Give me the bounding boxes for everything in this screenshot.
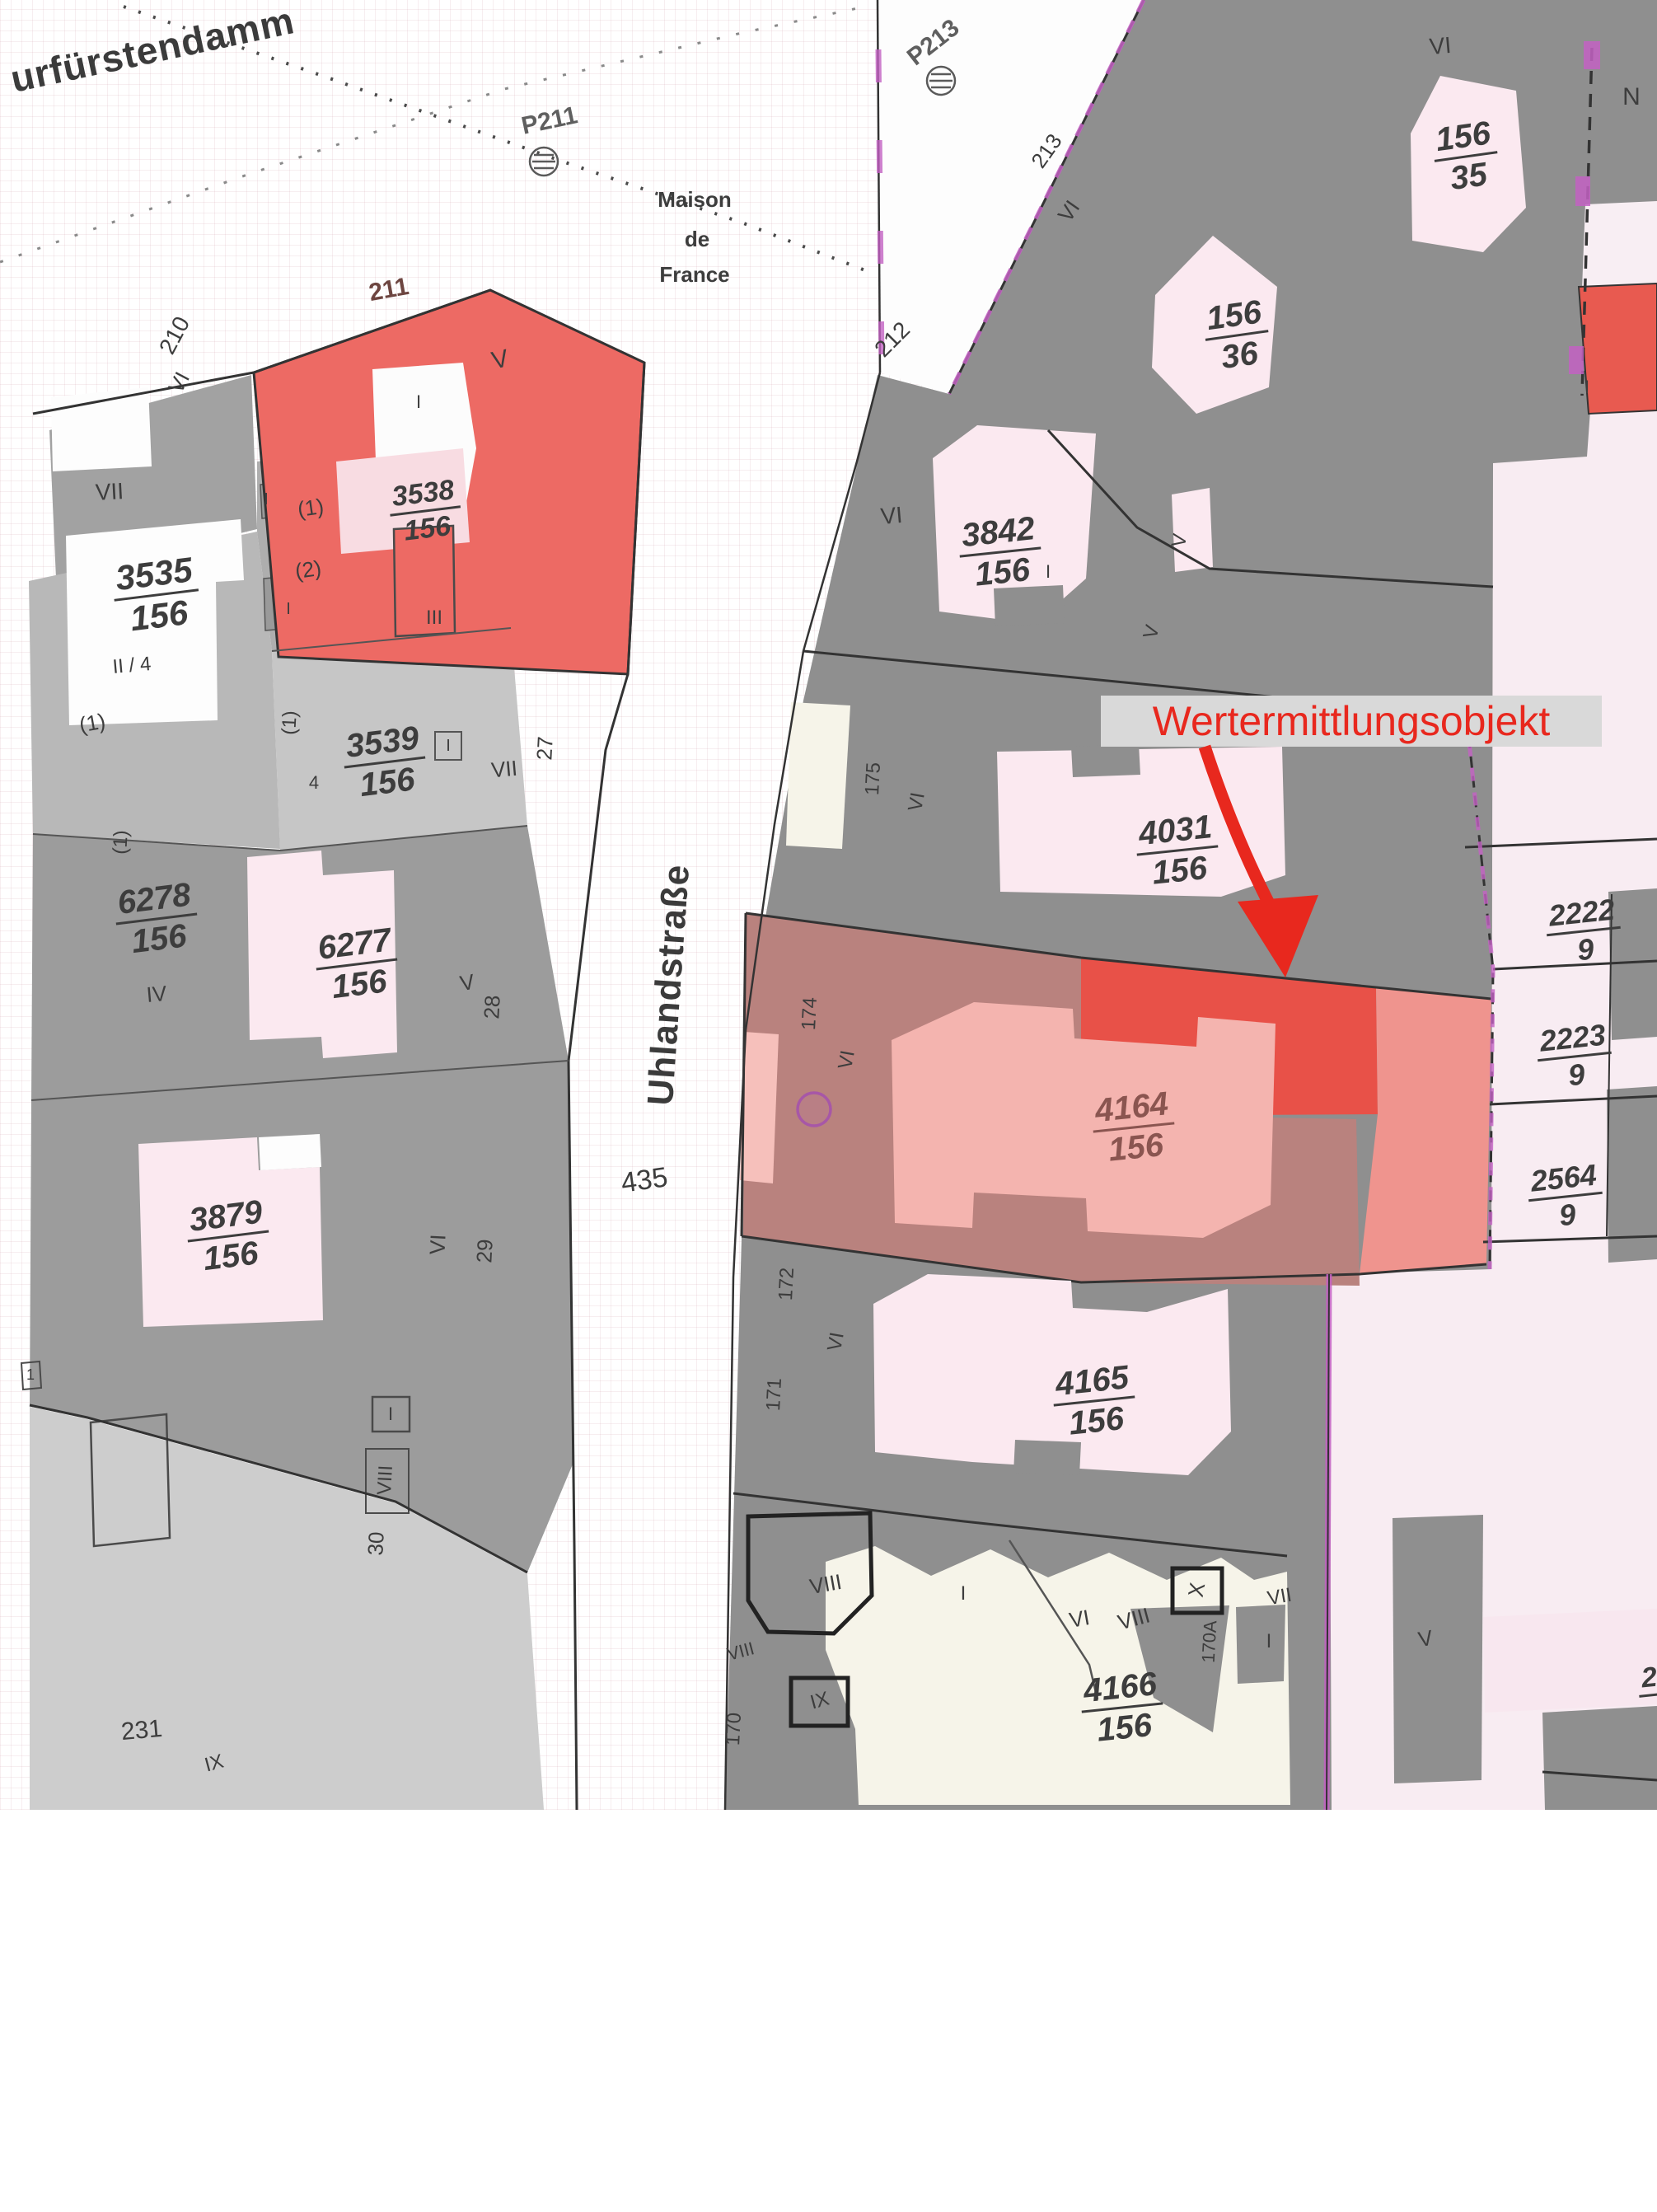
label-n29: 29 [473, 1239, 495, 1263]
label-i-4166-b: I [1266, 1632, 1272, 1652]
label-x-box: X [1185, 1581, 1209, 1599]
label-viii-strip: VIII [375, 1465, 396, 1495]
label-parcel-6277: 6277156 [311, 923, 401, 1005]
label-parcel-2564-denominator: 9 [1528, 1194, 1606, 1234]
label-ix-box: IX [808, 1689, 831, 1713]
cadastral-map: urfürstendammUhlandstraße435MaisondeFran… [0, 0, 1657, 2212]
label-n213: 213 [1027, 130, 1065, 171]
label-n175: 175 [863, 762, 884, 795]
label-i-red-ne: I [1584, 378, 1589, 396]
label-parcel-4165-denominator: 156 [1054, 1398, 1139, 1441]
label-parcel-2564: 25649 [1525, 1160, 1606, 1234]
label-parcel-4166: 4166156 [1078, 1667, 1167, 1749]
label-maison-2: de [685, 228, 709, 250]
label-vi-4031: VI [906, 791, 929, 813]
label-parcel-156-35-denominator: 35 [1435, 153, 1502, 197]
label-parcel-4164: 4164156 [1089, 1087, 1178, 1169]
label-n170a: 170A [1200, 1620, 1220, 1663]
label-wertermittlungsobjekt: Wertermittlungsobjekt [1153, 701, 1551, 742]
label-parcel-4165: 4165156 [1050, 1361, 1139, 1442]
label-v-se: V [1416, 1627, 1435, 1651]
label-n210: 210 [156, 313, 194, 358]
label-n174: 174 [799, 996, 821, 1030]
label-iv-6278: IV [146, 982, 168, 1005]
label-vi-4164: VI [836, 1049, 859, 1071]
map-labels: urfürstendammUhlandstraße435MaisondeFran… [0, 0, 1657, 1810]
label-kurfuerstendamm: urfürstendamm [7, 1, 297, 98]
label-i-3539: I [446, 738, 451, 754]
label-vi-213: VI [1054, 196, 1083, 225]
label-n30: 30 [364, 1531, 386, 1556]
label-uhlandstrasse: Uhlandstraße [643, 863, 695, 1107]
label-v-ne-2: V [1140, 623, 1163, 641]
label-uhland-435: 435 [620, 1163, 670, 1197]
label-maison-1: Maison [658, 189, 732, 210]
label-parcel-2223: 22239 [1534, 1019, 1615, 1094]
label-parcel-4031: 4031156 [1133, 810, 1222, 892]
label-viii-c: VIII [725, 1639, 756, 1664]
label-i-3842: I [1046, 563, 1051, 581]
label-parcel-edge-2-numerator: 2 [1636, 1662, 1657, 1698]
label-b4: (1) [279, 710, 301, 736]
label-n4: 4 [309, 774, 319, 792]
label-n27: 27 [533, 736, 555, 761]
label-b3: (1) [77, 710, 107, 735]
label-viii-b: VIII [1116, 1604, 1152, 1633]
label-n170: 170 [723, 1712, 745, 1746]
label-i-strip-1: I [264, 491, 269, 508]
label-parcel-4164-denominator: 156 [1093, 1124, 1178, 1168]
label-vii-b: VII [1266, 1586, 1293, 1610]
label-iii-211: III [426, 608, 442, 628]
label-parcel-3842-denominator: 156 [960, 549, 1045, 593]
label-v-6277: V [458, 971, 476, 995]
label-parcel-4031-denominator: 156 [1137, 847, 1222, 891]
label-vi-210: VI [165, 368, 193, 396]
label-parcel-edge-2: 2 [1636, 1662, 1657, 1700]
label-i-4166-a: I [961, 1584, 967, 1604]
label-parcel-3535: 3535156 [110, 552, 204, 639]
label-parcel-2222-denominator: 9 [1547, 929, 1624, 968]
label-ii-4: II / 4 [112, 654, 152, 677]
label-parcel-2223-denominator: 9 [1538, 1054, 1615, 1094]
label-parcel-2222: 22229 [1543, 894, 1624, 968]
label-parcel-3538: 3538156 [386, 476, 464, 547]
label-n172: 172 [776, 1267, 798, 1300]
label-n231: 231 [120, 1717, 163, 1745]
label-n171: 171 [764, 1377, 785, 1411]
label-v-211: V [489, 346, 511, 374]
label-v-ne-1: V [1169, 532, 1191, 549]
label-parcel-6278: 6278156 [111, 878, 201, 960]
label-vi-156-35: VI [1429, 34, 1453, 59]
label-i-strip-2: I [286, 601, 291, 617]
label-p211: P211 [519, 103, 579, 139]
label-parcel-156-36: 15636 [1201, 295, 1273, 377]
label-ix-231: IX [203, 1751, 226, 1775]
label-parcel-156-36-denominator: 36 [1205, 332, 1273, 376]
label-i-strip-s: I [388, 1405, 393, 1423]
label-parcel-3539: 3539156 [339, 721, 429, 804]
label-edge-n: N [1622, 85, 1641, 110]
label-p213: P213 [903, 16, 964, 71]
label-vii-3539: VII [490, 757, 518, 781]
label-i-211: I [416, 393, 421, 411]
label-b2: (2) [293, 557, 322, 582]
label-n28: 28 [480, 995, 503, 1019]
label-vii-west: VII [95, 480, 124, 504]
label-vi-3879: VI [426, 1234, 448, 1255]
label-vi-4165: VI [825, 1331, 848, 1353]
label-vi-4166: VI [1068, 1606, 1092, 1631]
page-margin-bottom [0, 1810, 1657, 2212]
label-parcel-4166-denominator: 156 [1082, 1704, 1167, 1748]
label-parcel-3879: 3879156 [183, 1195, 273, 1277]
label-n1-box: 1 [26, 1367, 35, 1382]
label-b1: (1) [296, 495, 325, 520]
label-maison-3: France [659, 264, 729, 285]
label-vi-3842: VI [880, 504, 904, 528]
label-parcel-156-35: 15635 [1430, 116, 1502, 198]
label-b5: (1) [110, 830, 132, 855]
label-n211: 211 [367, 274, 411, 306]
label-n212: 212 [871, 318, 915, 362]
label-viii-a: VIII [808, 1571, 844, 1597]
label-parcel-3842: 3842156 [956, 512, 1045, 593]
